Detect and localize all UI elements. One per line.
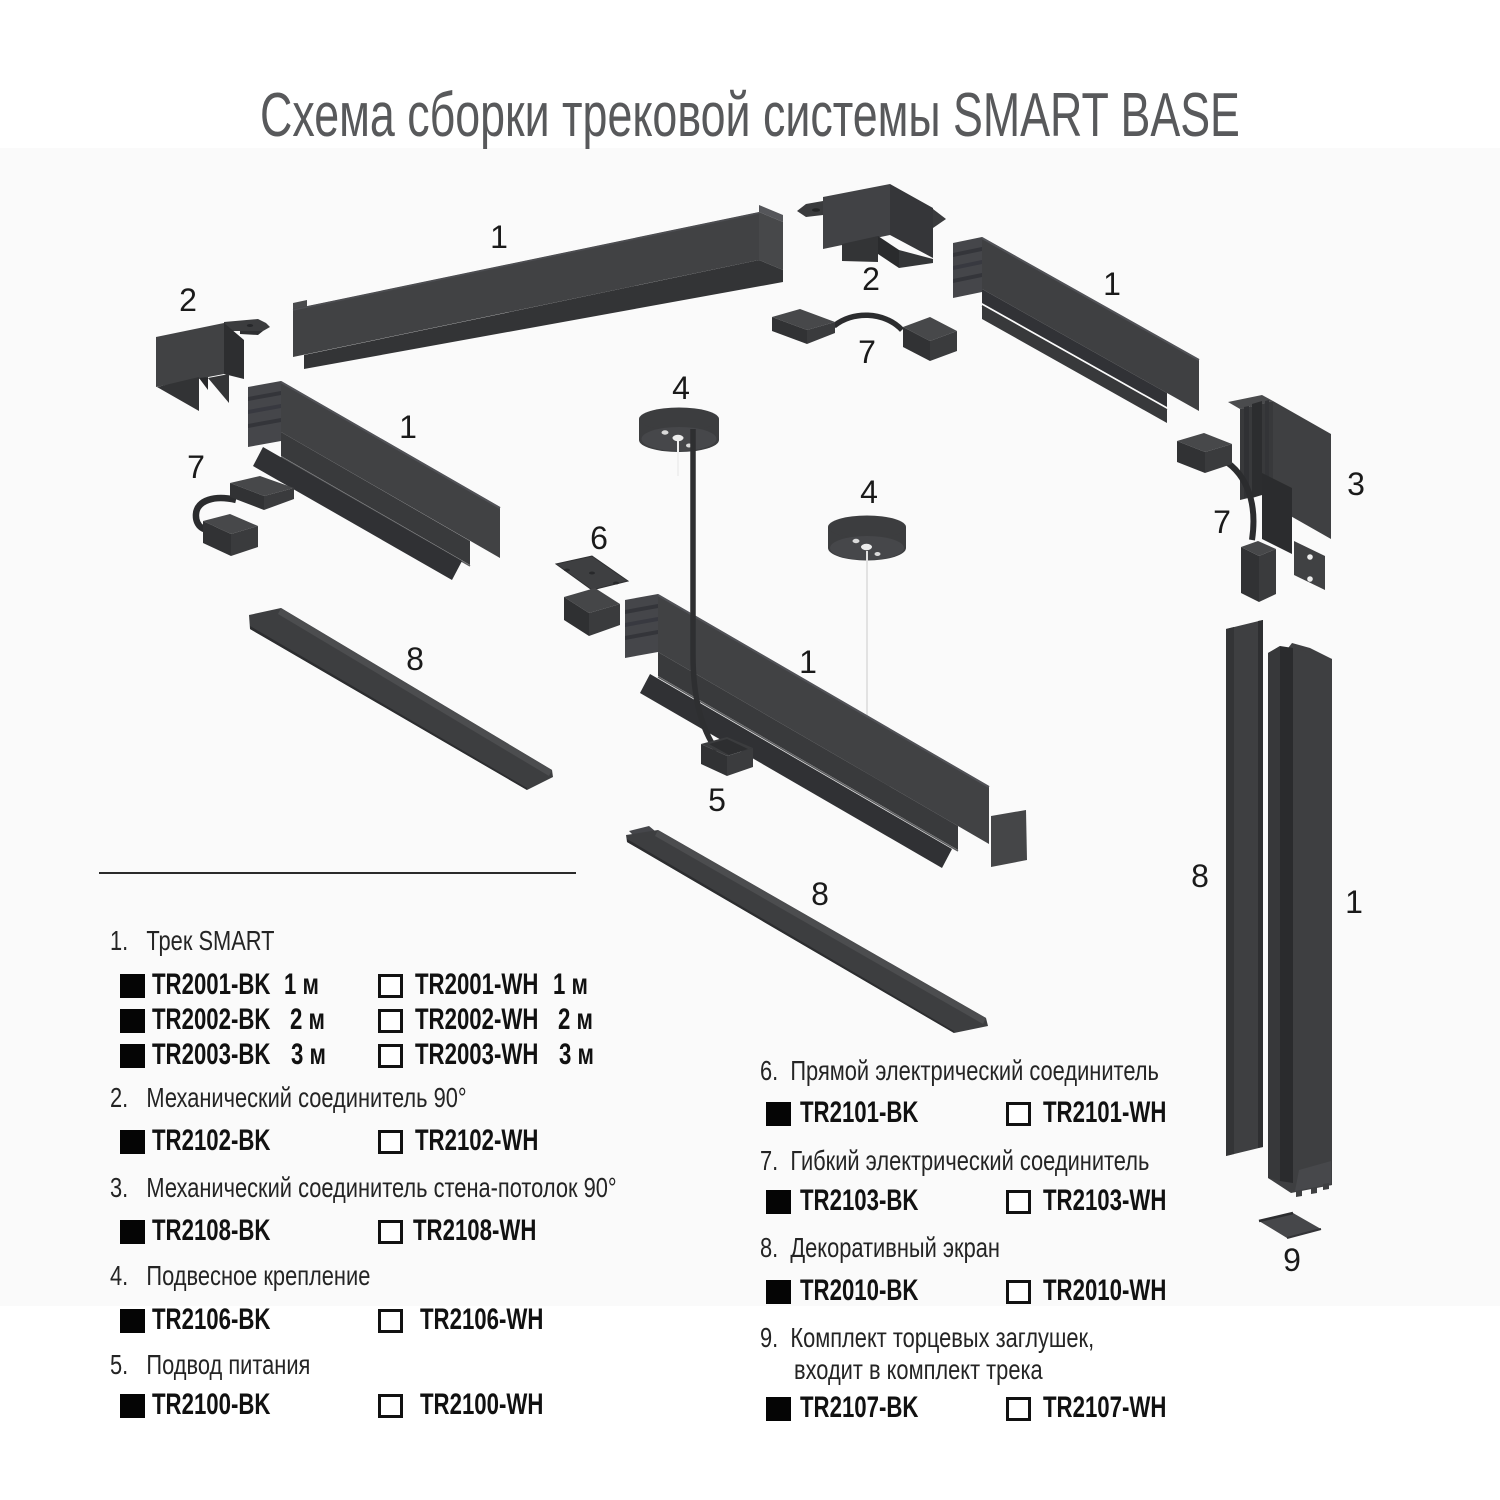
svg-text:4: 4: [860, 474, 878, 510]
svg-text:7: 7: [187, 449, 205, 485]
svg-text:7: 7: [1213, 504, 1231, 540]
svg-text:4: 4: [672, 370, 690, 406]
svg-text:2: 2: [179, 282, 197, 318]
svg-text:3: 3: [1347, 466, 1365, 502]
svg-text:1: 1: [1345, 884, 1363, 920]
svg-text:7: 7: [858, 334, 876, 370]
svg-text:1: 1: [490, 219, 508, 255]
svg-text:9: 9: [1283, 1242, 1301, 1278]
svg-text:1: 1: [799, 644, 817, 680]
svg-text:1: 1: [399, 409, 417, 445]
svg-text:6: 6: [590, 520, 608, 556]
svg-text:8: 8: [811, 876, 829, 912]
svg-text:8: 8: [406, 641, 424, 677]
svg-text:1: 1: [1103, 266, 1121, 302]
svg-text:5: 5: [708, 782, 726, 818]
svg-text:2: 2: [862, 261, 880, 297]
svg-text:8: 8: [1191, 858, 1209, 894]
